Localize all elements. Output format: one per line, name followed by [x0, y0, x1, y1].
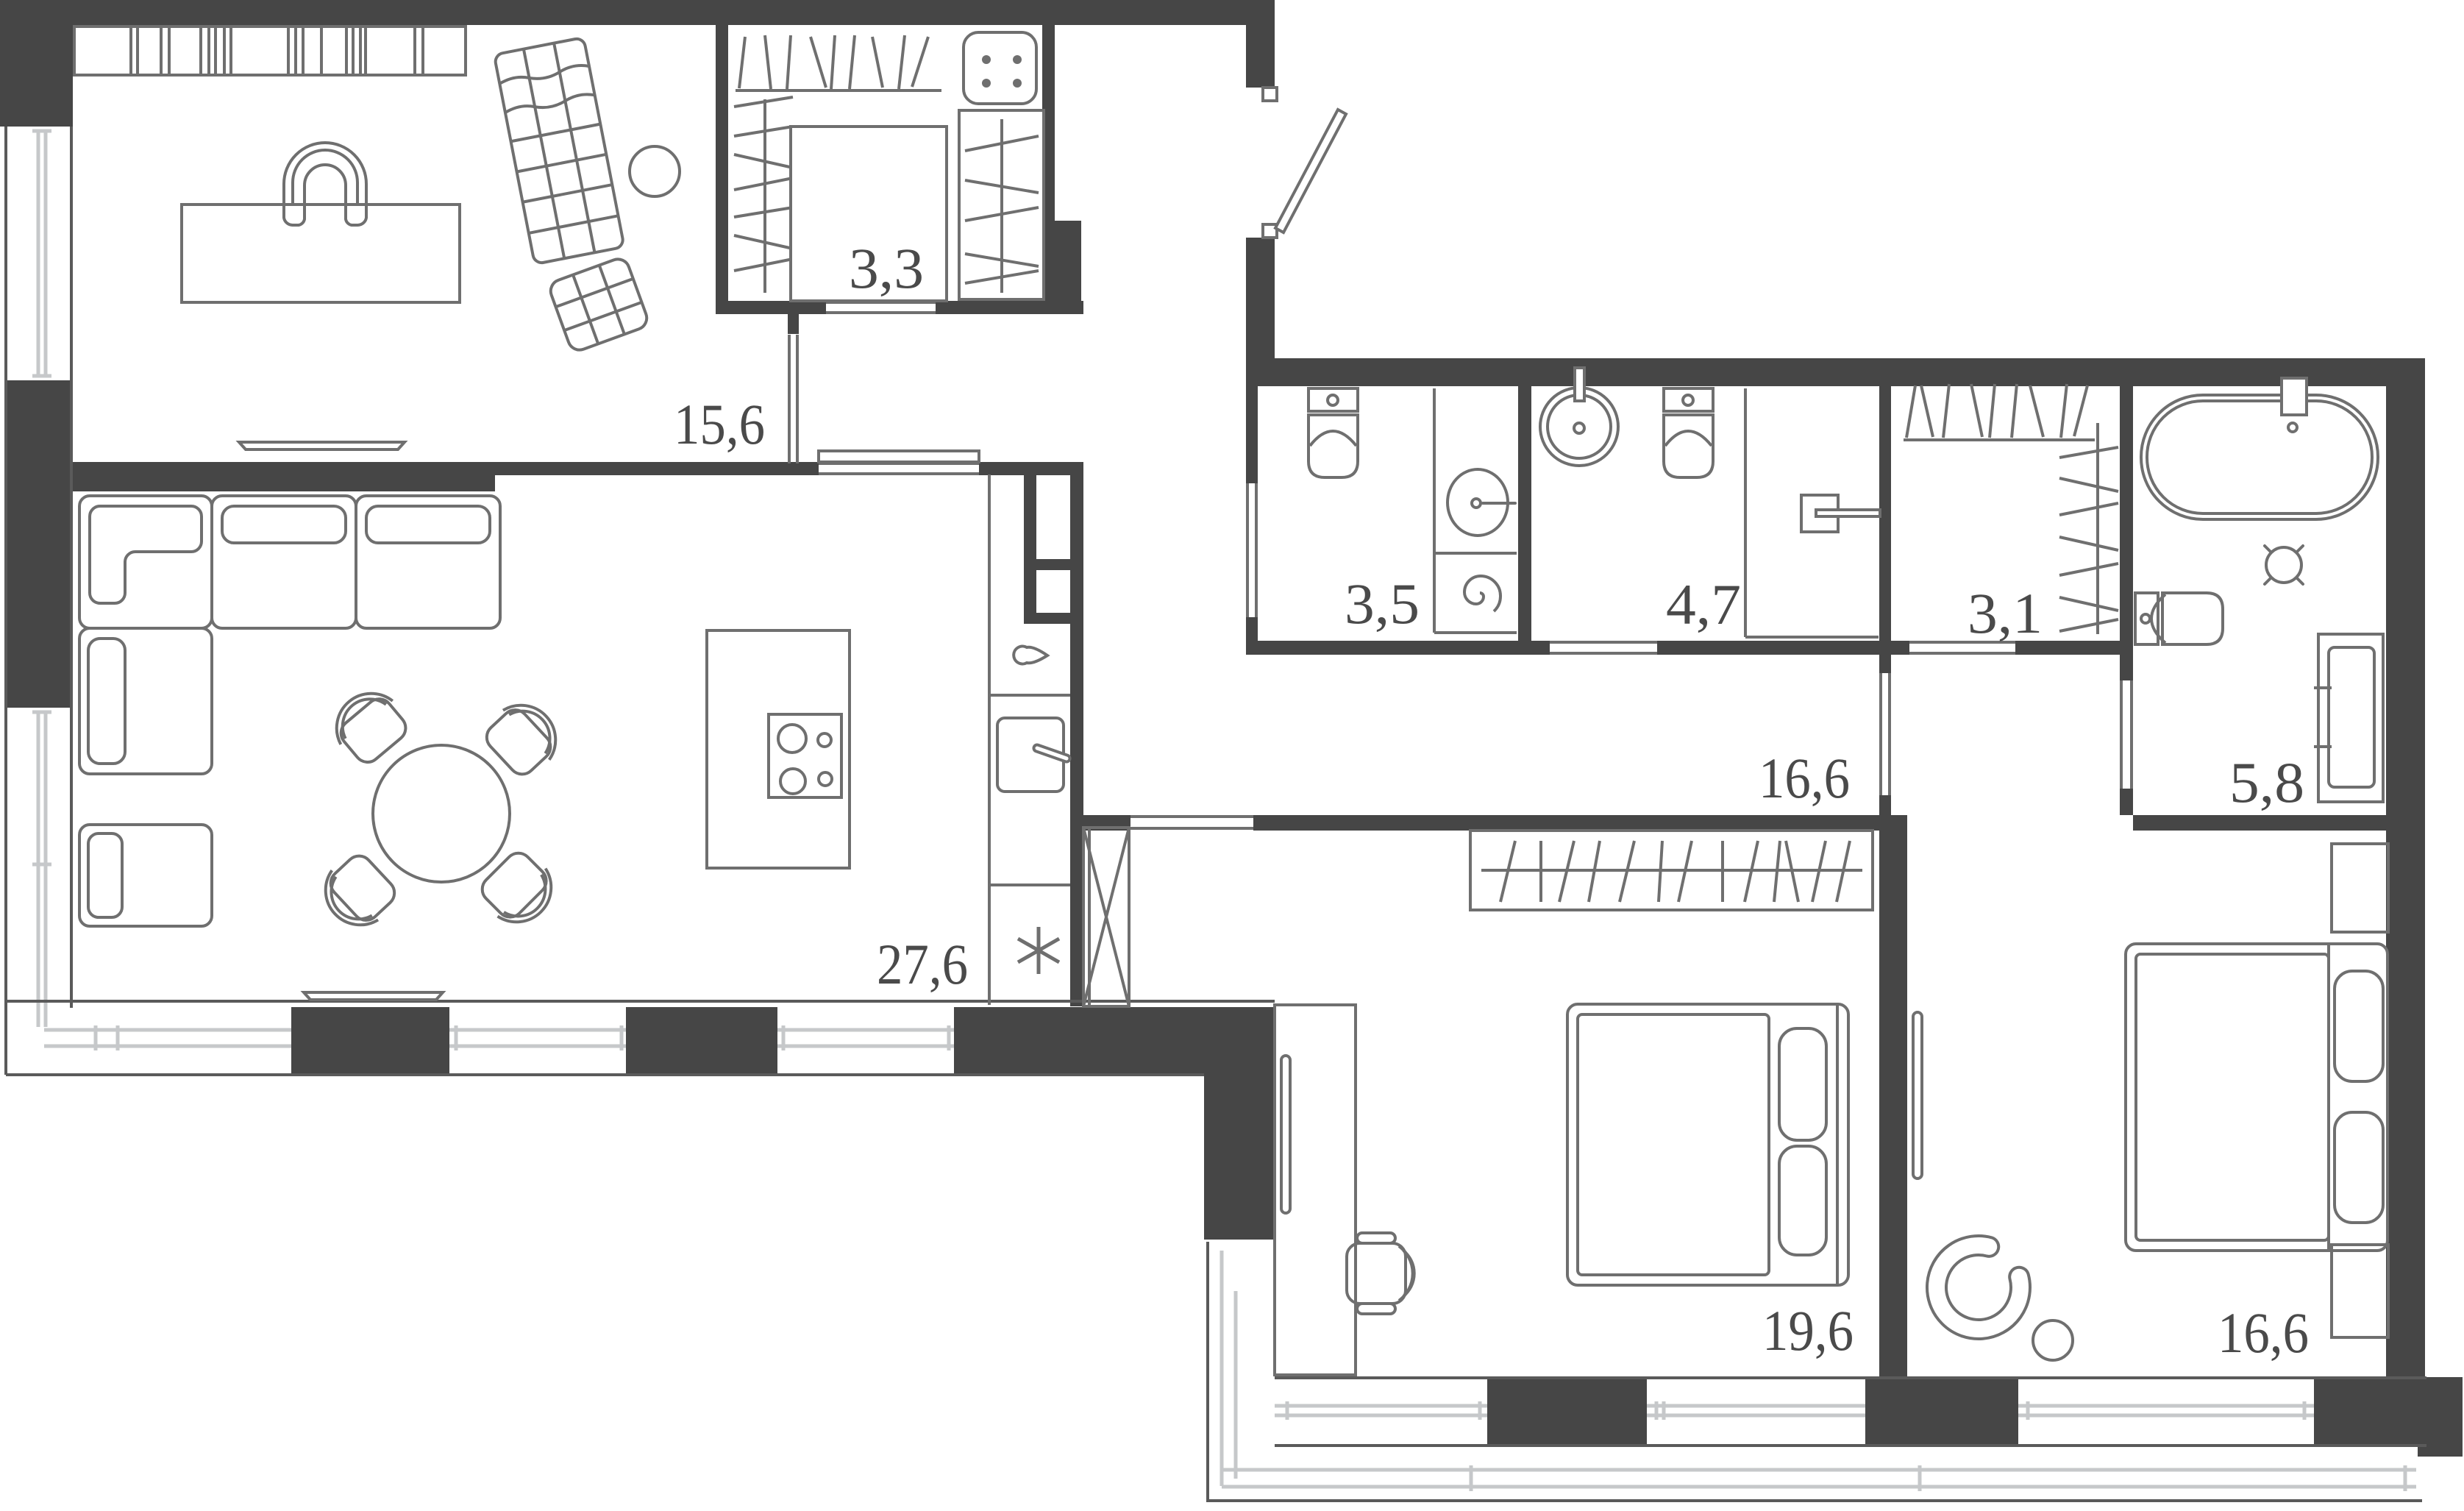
svg-text:3,5: 3,5 — [1345, 572, 1420, 636]
svg-text:15,6: 15,6 — [674, 392, 765, 456]
svg-text:27,6: 27,6 — [877, 932, 968, 996]
svg-text:16,6: 16,6 — [2218, 1301, 2309, 1365]
svg-text:3,1: 3,1 — [1968, 581, 2043, 645]
svg-text:19,6: 19,6 — [1762, 1298, 1854, 1362]
svg-text:16,6: 16,6 — [1759, 746, 1850, 810]
svg-text:5,8: 5,8 — [2229, 750, 2304, 814]
svg-text:4,7: 4,7 — [1666, 572, 1741, 636]
svg-text:3,3: 3,3 — [849, 236, 924, 300]
